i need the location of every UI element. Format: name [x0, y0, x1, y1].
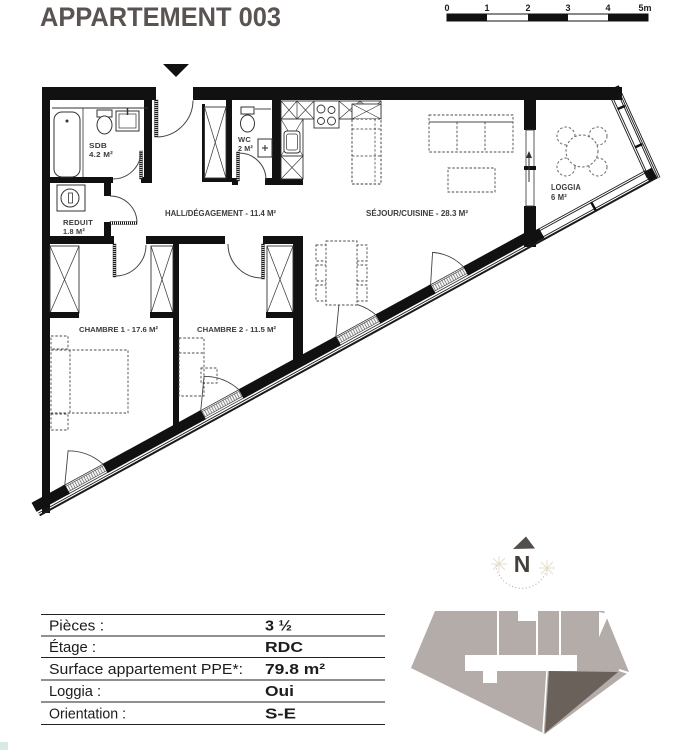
svg-text:4: 4 — [605, 3, 610, 13]
svg-text:2: 2 — [525, 3, 530, 13]
svg-text:Surface appartement PPE*:: Surface appartement PPE*: — [49, 661, 243, 678]
svg-text:3 ½: 3 ½ — [265, 618, 292, 635]
svg-text:4.2 M²: 4.2 M² — [89, 150, 113, 159]
svg-text:Oui: Oui — [265, 683, 294, 700]
svg-text:3: 3 — [565, 3, 570, 13]
svg-text:APPARTEMENT 003: APPARTEMENT 003 — [40, 2, 281, 32]
svg-text:6 M²: 6 M² — [551, 193, 567, 202]
svg-text:1: 1 — [484, 3, 489, 13]
svg-text:Étage :: Étage : — [49, 639, 96, 656]
svg-text:WC: WC — [238, 135, 251, 144]
svg-text:Orientation :: Orientation : — [49, 706, 126, 723]
svg-text:0: 0 — [444, 3, 449, 13]
svg-text:LOGGIA: LOGGIA — [551, 183, 581, 192]
svg-text:CHAMBRE 1 - 17.6 M²: CHAMBRE 1 - 17.6 M² — [79, 325, 158, 334]
svg-text:5m: 5m — [638, 3, 651, 13]
svg-text:REDUIT: REDUIT — [63, 218, 93, 227]
svg-text:CHAMBRE 2 - 11.5 M²: CHAMBRE 2 - 11.5 M² — [197, 325, 276, 334]
svg-text:Loggia :: Loggia : — [49, 683, 101, 700]
svg-text:RDC: RDC — [265, 639, 303, 656]
svg-text:1.8 M²: 1.8 M² — [63, 227, 85, 236]
svg-text:S-E: S-E — [265, 706, 296, 723]
svg-text:79.8 m²: 79.8 m² — [265, 661, 325, 678]
svg-text:Pièces :: Pièces : — [49, 618, 104, 635]
svg-text:SDB: SDB — [89, 141, 107, 150]
svg-text:N: N — [514, 551, 531, 577]
svg-text:HALL/DÉGAGEMENT - 11.4 M²: HALL/DÉGAGEMENT - 11.4 M² — [165, 209, 276, 218]
svg-text:SÉJOUR/CUISINE - 28.3 M²: SÉJOUR/CUISINE - 28.3 M² — [366, 209, 468, 218]
svg-text:2 M²: 2 M² — [238, 144, 253, 153]
